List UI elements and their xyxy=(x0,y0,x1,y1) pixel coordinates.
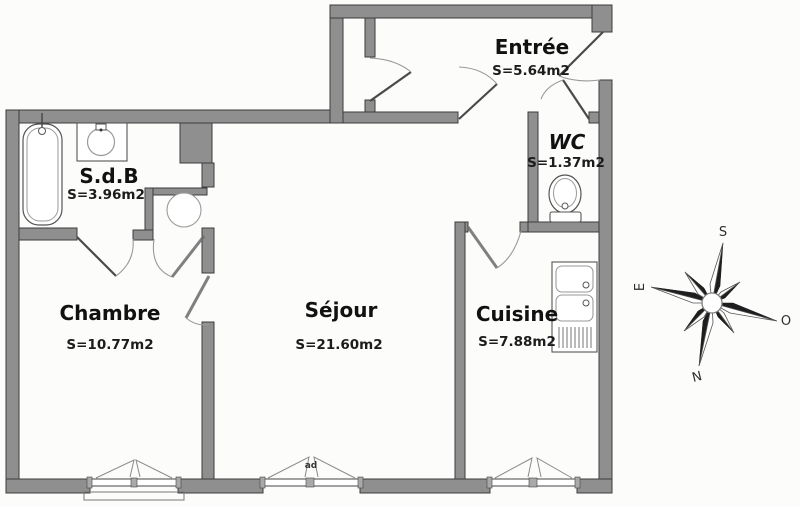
wc-door xyxy=(541,80,589,119)
wall-entree-sejour xyxy=(343,112,458,123)
room-label-sejour: Séjour xyxy=(305,298,378,322)
wall-divider-c xyxy=(202,322,214,479)
room-area-wc: S=1.37m2 xyxy=(527,155,605,171)
window-cuisine xyxy=(487,458,580,488)
room-area-entree: S=5.64m2 xyxy=(492,63,570,79)
room-label-sdb: S.d.B xyxy=(79,164,138,188)
wall-bump-left xyxy=(330,5,343,123)
washbasin xyxy=(77,123,127,161)
wall-wc-bottom xyxy=(528,222,599,232)
floor-plan-svg: ad xyxy=(0,0,800,507)
water-heater xyxy=(167,193,201,227)
room-label-cuisine: Cuisine xyxy=(476,302,558,326)
bathtub xyxy=(23,113,62,225)
window-sejour: ad xyxy=(260,457,363,488)
kitchen-sink xyxy=(552,262,597,352)
wall-bottom-2 xyxy=(178,479,263,493)
wall-divider-b xyxy=(202,228,214,273)
wall-bottom-1 xyxy=(6,479,90,493)
window-sill xyxy=(84,492,184,500)
compass-rose: S N E O xyxy=(633,225,791,386)
room-area-sejour: S=21.60m2 xyxy=(295,337,382,353)
chambre-door xyxy=(186,276,209,325)
wall-closet-top xyxy=(145,188,207,195)
wall-kitchen-left xyxy=(455,222,465,479)
sdb-door xyxy=(77,237,133,276)
wall-right xyxy=(599,80,612,493)
wall-divider-a xyxy=(202,163,214,187)
window-chambre xyxy=(84,460,184,500)
bedroom-closet-door xyxy=(153,236,204,277)
room-label-chambre: Chambre xyxy=(60,301,161,325)
wall-wc-top-stub xyxy=(589,112,599,123)
wall-left xyxy=(6,110,19,493)
compass-label-o: O xyxy=(781,314,791,329)
wall-pier xyxy=(180,123,212,163)
compass-label-e: E xyxy=(633,283,648,291)
room-label-entree: Entrée xyxy=(495,35,569,59)
compass-label-n: N xyxy=(691,369,704,386)
room-area-sdb: S=3.96m2 xyxy=(67,187,145,203)
wall-door-post xyxy=(133,230,153,240)
compass-hub xyxy=(702,293,722,313)
floor-plan-page: ad xyxy=(0,0,800,507)
room-area-cuisine: S=7.88m2 xyxy=(478,334,556,350)
windows: ad xyxy=(84,457,580,500)
wall-hall-closet-top xyxy=(365,18,375,57)
wall-bottom-3 xyxy=(360,479,490,493)
window-label: ad xyxy=(305,461,318,471)
wall-top-left xyxy=(6,110,343,123)
wall-top-right-block xyxy=(592,5,612,32)
kitchen-door xyxy=(468,227,521,268)
toilet xyxy=(549,175,581,222)
wall-sdb-bottom xyxy=(19,228,77,240)
wall-bottom-4 xyxy=(577,479,612,493)
wall-top xyxy=(330,5,612,18)
hall-closet-door xyxy=(370,58,411,101)
compass-label-s: S xyxy=(719,225,727,240)
wall-kitchen-top-right xyxy=(520,222,528,232)
washbasin-knob xyxy=(100,129,103,132)
room-label-wc: WC xyxy=(549,130,586,154)
room-area-chambre: S=10.77m2 xyxy=(66,337,153,353)
